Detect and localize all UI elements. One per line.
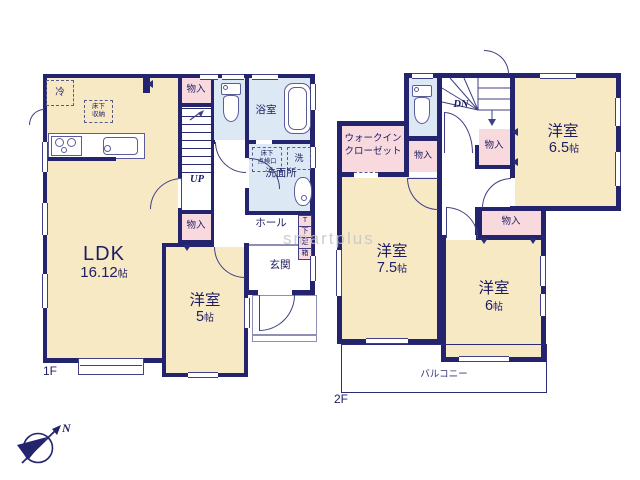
counter-front-wall xyxy=(48,157,116,161)
room-label-entrance: 玄関 xyxy=(270,260,291,272)
inspection-hatch-label: 床下 xyxy=(253,150,281,158)
window xyxy=(615,152,621,186)
door-opening xyxy=(409,172,437,177)
room-label-western6: 洋室 xyxy=(478,280,509,297)
fridge-space: 冷 xyxy=(46,80,74,106)
closet-open-mark xyxy=(512,128,518,136)
window xyxy=(188,372,218,378)
room-size-western5: 5帖 xyxy=(196,310,214,326)
underfloor-storage: 床下 収納 xyxy=(84,100,113,123)
burner-icon xyxy=(61,147,67,153)
porch-step-line xyxy=(252,334,316,336)
window xyxy=(336,250,342,296)
stairs-dn-label: DN xyxy=(453,99,468,111)
room-size-western75: 7.5帖 xyxy=(377,261,407,277)
wic-label: クローゼット xyxy=(344,147,401,157)
room-label-western65: 洋室 xyxy=(547,123,578,140)
burner-icon xyxy=(67,138,76,147)
closet-open-mark xyxy=(183,245,191,251)
closet-folding-door xyxy=(354,172,378,178)
compass-north-label: N xyxy=(62,421,71,436)
wic-label: ウォークイン xyxy=(344,134,401,144)
burner-icon xyxy=(55,138,64,147)
closet-label: 物入 xyxy=(414,151,432,161)
room-label-bath: 浴室 xyxy=(256,105,277,117)
door-arc xyxy=(484,50,509,74)
closet-label: 物入 xyxy=(484,141,503,151)
underfloor-storage-label: 収納 xyxy=(85,111,112,119)
stair-arrow-icon xyxy=(186,106,210,124)
underfloor-storage-label: 床下 xyxy=(85,103,112,111)
window xyxy=(244,298,250,328)
door-opening xyxy=(256,140,272,144)
toilet-bowl-icon xyxy=(414,97,430,124)
inspection-hatch-label: 点検口 xyxy=(253,158,281,166)
room-label-hall: ホール xyxy=(255,218,287,230)
closet-label: 物入 xyxy=(186,85,205,95)
closet-open-mark xyxy=(147,80,153,88)
toilet-button-icon xyxy=(223,85,228,90)
floor-label-2f: 2F xyxy=(334,392,348,406)
bay-window xyxy=(78,358,144,375)
balcony-label: バルコニー xyxy=(420,370,467,380)
shoe-box-cell: T xyxy=(299,216,311,227)
window xyxy=(310,84,316,110)
laundry-label: 洗 xyxy=(294,153,303,163)
bathtub-inner xyxy=(288,87,307,130)
room-label-washroom: 洗面所 xyxy=(265,168,297,180)
floorplan-canvas: T 下 足 箱 xyxy=(0,0,640,480)
washbasin-icon xyxy=(294,177,312,206)
closet-open-mark xyxy=(512,158,518,166)
room-label-western5: 洋室 xyxy=(189,292,220,309)
window xyxy=(252,74,278,80)
window xyxy=(42,142,48,172)
closet-label: 物入 xyxy=(501,217,520,227)
window xyxy=(540,256,546,286)
room-size-ldk: 16.12帖 xyxy=(80,265,128,282)
hatch-arc xyxy=(29,109,44,125)
room-size-western65: 6.5帖 xyxy=(549,141,579,157)
toilet-button-icon xyxy=(414,87,419,92)
window xyxy=(412,73,433,79)
window xyxy=(222,74,244,80)
window xyxy=(540,294,546,316)
window xyxy=(200,74,218,80)
closet-label: 物入 xyxy=(186,221,205,231)
room-label-western75: 洋室 xyxy=(376,243,407,260)
toilet-bowl-icon xyxy=(223,95,239,122)
bay-window-sash xyxy=(80,365,142,366)
closet-open-mark xyxy=(480,238,488,244)
room-size-western6: 6帖 xyxy=(485,299,503,315)
window xyxy=(42,274,48,308)
window xyxy=(310,256,316,281)
window xyxy=(615,98,621,126)
closet-open-mark xyxy=(529,238,537,244)
window xyxy=(366,338,408,344)
faucet-icon xyxy=(301,195,307,201)
faucet-icon xyxy=(104,145,111,152)
window xyxy=(42,203,48,235)
watermark: smartplus xyxy=(283,229,375,249)
fridge-label: 冷 xyxy=(55,87,65,98)
floor-label-1f: 1F xyxy=(43,364,57,378)
window xyxy=(459,356,509,362)
winder-stairs-icon xyxy=(442,78,510,145)
room-label-ldk: LDK xyxy=(83,243,125,265)
window xyxy=(540,73,576,79)
stairs-up-label: UP xyxy=(190,174,204,186)
